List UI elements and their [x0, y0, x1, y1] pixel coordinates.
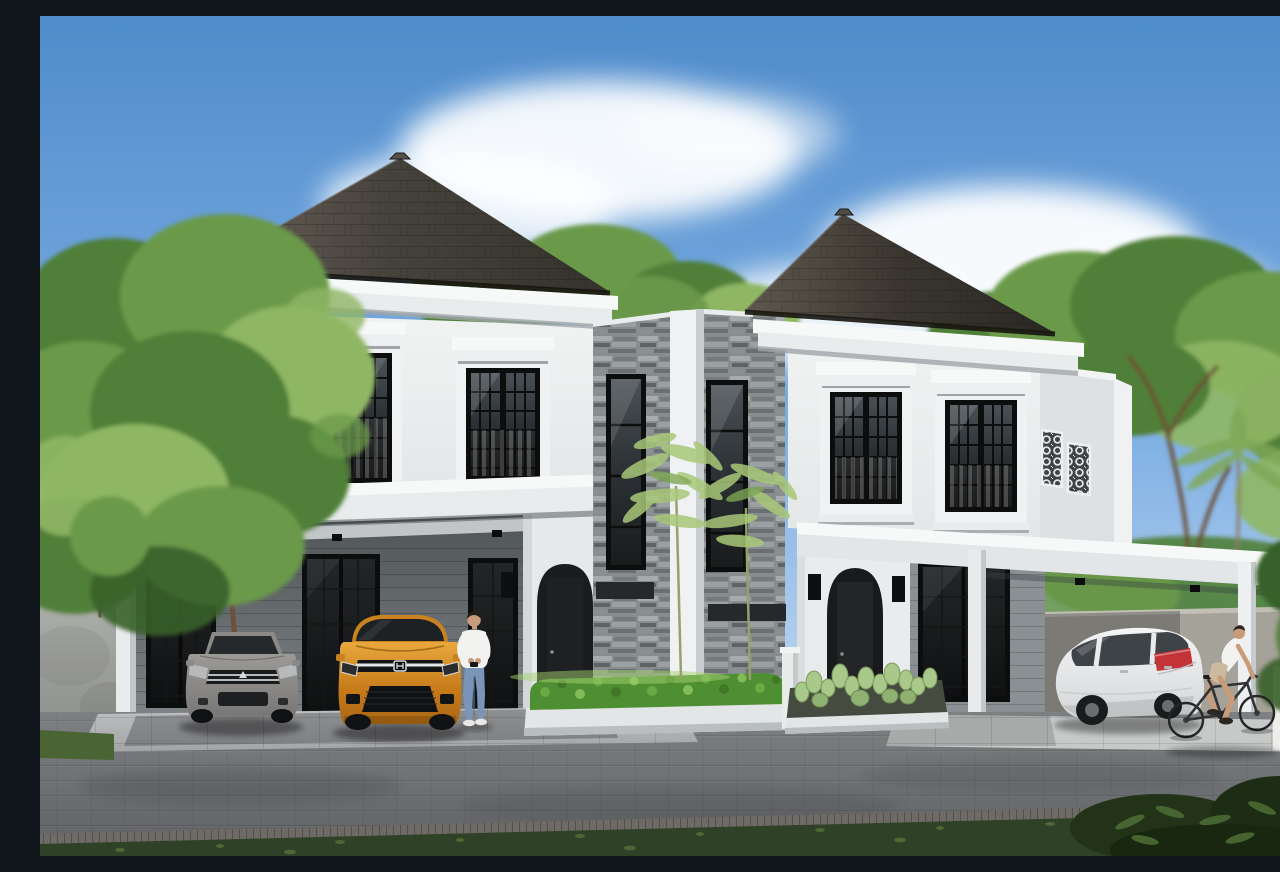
grass-strip-left: [40, 730, 114, 760]
cactus-bed: [785, 663, 949, 734]
wall-sconce: [808, 574, 821, 600]
lattice-panel: [1068, 443, 1090, 495]
windshield: [208, 636, 279, 655]
trimmed-hedge: [510, 670, 785, 710]
pediment-window: [931, 370, 1031, 533]
lattice-panel: [1042, 430, 1062, 487]
phone: [470, 662, 478, 667]
stone-accent-band: [596, 582, 654, 599]
honda-logo: [394, 661, 406, 671]
lattice-parapet: [1038, 364, 1132, 556]
wall-sconce: [892, 576, 905, 602]
cloud: [620, 94, 840, 174]
pediment-window: [816, 362, 916, 525]
wall-sconce: [501, 572, 513, 598]
canopy-downlight: [1075, 578, 1085, 585]
lower-intake: [362, 686, 438, 712]
canopy-downlight: [1190, 585, 1200, 592]
architectural-rendering: [40, 16, 1280, 856]
scene-svg: [40, 16, 1280, 856]
